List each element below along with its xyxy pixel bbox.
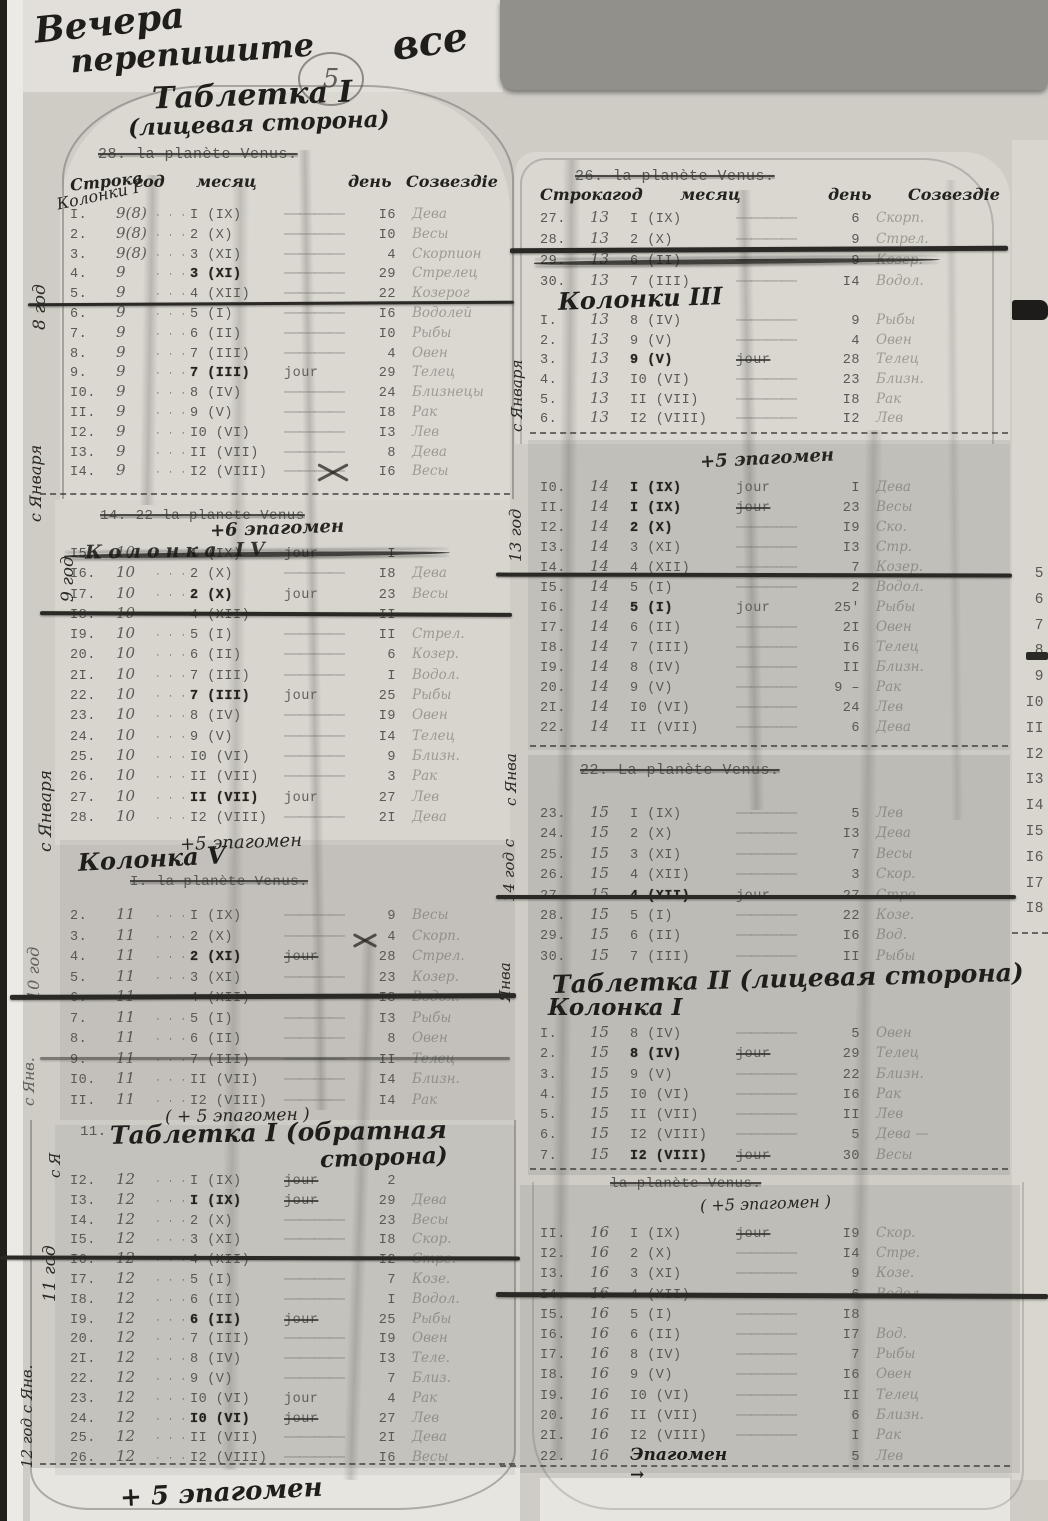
cell-year: 12 — [116, 1210, 156, 1228]
cell-constellation: Лев — [860, 805, 1000, 821]
cell-year: 13 — [590, 330, 630, 348]
line-number: I6 — [1018, 850, 1044, 876]
col-header-day: день — [828, 185, 872, 204]
cell-pencil-dots: · · · — [156, 751, 190, 763]
cell-year: 12 — [116, 1427, 156, 1445]
struck-print-header: 26. la planète Venus. — [575, 168, 775, 185]
cell-month: 6 (II) — [630, 254, 736, 269]
cell-day: 23 — [352, 588, 396, 603]
cell-month: I0 (VI) — [630, 701, 736, 716]
cell-year: 13 — [590, 408, 630, 426]
adjacent-page-line-numbers: 56789I0III2I3I4I5I6I7I8 — [1018, 566, 1044, 927]
table-row: 3.11· · ·2 (X)――――4Скорп. — [70, 926, 510, 947]
table-row: 4.9· · ·3 (XI)――――29Стрелец — [70, 263, 510, 283]
cell-day: 25 — [352, 689, 396, 704]
cell-pencil-dots: · · · — [156, 427, 190, 439]
cell-month: 9 (V) — [190, 730, 284, 745]
cell-year: 10 — [116, 685, 156, 703]
cell-year: 14 — [590, 577, 630, 595]
pencil-rule — [40, 1057, 510, 1060]
cell-constellation: Дева — — [860, 1126, 1000, 1142]
cell-row-number: 4. — [70, 950, 116, 965]
cell-jour: jour — [736, 1047, 816, 1062]
page-left-gap — [7, 0, 23, 1521]
cell-day: 22 — [816, 1068, 860, 1083]
cell-row-number: 25. — [70, 750, 116, 765]
cell-row-number: I. — [70, 208, 116, 223]
cell-constellation: Телец — [860, 639, 1000, 655]
cell-row-number: 6. — [540, 1128, 590, 1143]
cell-pencil-dots: · · · — [156, 629, 190, 641]
cell-year: 15 — [590, 946, 630, 964]
page-left-edge — [0, 0, 7, 1521]
cell-dash: ―――― — [284, 747, 352, 765]
cell-year: 14 — [590, 657, 630, 675]
table-row: 6.9· · ·5 (I)――――I6Водолей — [70, 303, 510, 323]
cell-row-number: 8. — [70, 1032, 116, 1047]
cell-constellation: Рыбы — [396, 687, 510, 703]
cell-pencil-dots: · · · — [156, 1353, 190, 1365]
cell-year: 15 — [590, 1145, 630, 1163]
cell-day: I4 — [352, 1094, 396, 1109]
line-number: II — [1018, 721, 1044, 747]
cell-month: 7 (III) — [190, 689, 284, 704]
cell-day: 7 — [352, 1273, 396, 1288]
table-row: 6.15I2 (VIII)――――5Дева — — [540, 1124, 1000, 1144]
cell-month: 9 (V) — [630, 1068, 736, 1083]
cell-pencil-dots: · · · — [156, 1333, 190, 1345]
cell-pencil-dots: · · · — [156, 771, 190, 783]
table-row: I8.169 (V)――――I6Овен — [540, 1364, 1000, 1384]
cell-day: 3 — [352, 770, 396, 785]
cell-row-number: 27. — [540, 212, 590, 227]
cell-year: 12 — [116, 1408, 156, 1426]
cell-row-number: I0. — [70, 386, 116, 401]
cell-constellation: Весы — [860, 846, 1000, 862]
cell-pencil-dots: · · · — [156, 209, 190, 221]
cell-row-number: 20. — [540, 1409, 590, 1424]
cell-dash: ―――― — [284, 666, 352, 684]
cell-row-number: 24. — [540, 827, 590, 842]
cell-year: 9 — [116, 422, 156, 440]
tablet2-column-subtitle: Колонка I — [548, 994, 682, 1021]
cell-year: 16 — [590, 1385, 630, 1403]
cell-row-number: 6. — [540, 412, 590, 427]
cell-month: 9 (V) — [190, 1372, 284, 1387]
cell-month: 7 (III) — [190, 669, 284, 684]
cell-month: 2 (X) — [190, 588, 284, 603]
cell-constellation: Дева — [860, 825, 1000, 841]
cell-constellation: Скорп. — [860, 210, 1000, 226]
cell-year: 11 — [116, 905, 156, 923]
cell-row-number: 5. — [540, 393, 590, 408]
table-row: I9.12· · ·6 (II)jour25Рыбы — [70, 1309, 510, 1329]
cell-year: 12 — [116, 1229, 156, 1247]
table-row: I4.12· · ·2 (X)――――23Весы — [70, 1210, 510, 1230]
pencil-x-mark — [316, 456, 350, 486]
cell-day: 27 — [352, 1412, 396, 1427]
cell-constellation: Весы — [396, 226, 510, 242]
cell-month: 6 (II) — [630, 929, 736, 944]
table-row: 3.9(8)· · ·3 (XI)――――4Скорпион — [70, 244, 510, 264]
table-row: 8.9· · ·7 (III)――――4Овен — [70, 343, 510, 363]
cell-year: 9 — [116, 442, 156, 460]
cell-dash: ―――― — [284, 264, 352, 282]
table-row: 7.15I2 (VIII)jour30Весы — [540, 1145, 1000, 1165]
cell-row-number: I2. — [540, 1247, 590, 1262]
line-number: I3 — [1018, 772, 1044, 798]
table-row: 20.10· · ·6 (II)――――6Козер. — [70, 644, 510, 664]
cell-jour: jour — [736, 1227, 816, 1242]
cell-year: 16 — [590, 1425, 630, 1443]
cell-row-number: II. — [70, 406, 116, 421]
cell-constellation: Водол. — [396, 1291, 510, 1307]
cell-row-number: 5. — [540, 1108, 590, 1123]
cell-dash: ―――― — [284, 403, 352, 421]
cell-day: 5 — [816, 1128, 860, 1143]
cell-row-number: I3. — [540, 1267, 590, 1282]
cell-month: II (VII) — [190, 1073, 284, 1088]
cell-row-number: 27. — [70, 791, 116, 806]
table-row: 4.15I0 (VI)――――I6Рак — [540, 1084, 1000, 1104]
cell-day: I8 — [816, 1308, 860, 1323]
cell-row-number: 2. — [70, 228, 116, 243]
cell-month: I (IX) — [190, 1174, 284, 1189]
cell-row-number: I7. — [70, 1273, 116, 1288]
cell-year: 9 — [116, 402, 156, 420]
cell-dash: ―――― — [284, 383, 352, 401]
cell-year: 13 — [590, 389, 630, 407]
cell-month: 6 (II) — [190, 648, 284, 663]
margin-note-start: с Января — [508, 360, 526, 432]
cell-dash: ―――― — [284, 564, 352, 582]
cell-day: 29 — [816, 1047, 860, 1062]
cell-year: 15 — [590, 1124, 630, 1142]
cell-year: 16 — [590, 1446, 630, 1464]
table-row: 5.15II (VII)――――IIЛев — [540, 1104, 1000, 1124]
cell-month: 5 (I) — [630, 581, 736, 596]
cell-row-number: I5. — [540, 581, 590, 596]
cell-month: 3 (XI) — [190, 1233, 284, 1248]
paper-patch — [540, 1478, 1010, 1521]
cell-constellation: Скор. — [396, 1231, 510, 1247]
cell-row-number: 30. — [540, 950, 590, 965]
cell-dash: ―――― — [736, 409, 816, 427]
cell-constellation: Водол. — [396, 667, 510, 683]
cell-month: I (IX) — [190, 909, 284, 924]
table-row: I.138 (IV)――――9Рыбы — [540, 310, 1000, 330]
cell-month: II (VII) — [190, 1431, 284, 1446]
cell-row-number: I8. — [70, 1293, 116, 1308]
cell-row-number: 29. — [540, 254, 590, 269]
cell-constellation: Близ. — [396, 1370, 510, 1386]
table-row: 23.10· · ·8 (IV)――――I9Овен — [70, 705, 510, 725]
cell-dash: ―――― — [736, 209, 816, 227]
margin-note-start: с Я — [46, 1153, 64, 1178]
cell-row-number: 2. — [70, 909, 116, 924]
cell-day: II — [816, 661, 860, 676]
cell-dash: ―――― — [284, 1009, 352, 1027]
cell-jour: jour — [284, 1392, 352, 1407]
table-row: I3.143 (XI)――――I3Стр. — [540, 537, 1000, 557]
cell-dash: ―――― — [736, 578, 816, 596]
cell-row-number: 25. — [70, 1431, 116, 1446]
cell-pencil-dots: · · · — [156, 1175, 190, 1187]
cell-day: 28 — [816, 353, 860, 368]
cell-year: 12 — [116, 1309, 156, 1327]
table-row: 28.155 (I)――――22Козе. — [540, 905, 1000, 925]
cell-constellation: Дева — [396, 565, 510, 581]
margin-note-start: с Янв. — [20, 1057, 38, 1106]
line-number: I0 — [1018, 695, 1044, 721]
cell-year: 13 — [590, 349, 630, 367]
cell-dash: ―――― — [284, 767, 352, 785]
cell-day: 9 — [816, 314, 860, 329]
cell-day: 28 — [352, 950, 396, 965]
cell-pencil-dots: · · · — [156, 308, 190, 320]
cell-row-number: 7. — [70, 1012, 116, 1027]
cell-pencil-dots: · · · — [156, 1013, 190, 1025]
venus-table-year16: II.16I (IX)jourI9Скор.I2.162 (X)――――I4Ст… — [540, 1223, 1000, 1465]
table-row: 9.9· · ·7 (III)jour29Телец — [70, 362, 510, 382]
torn-paper-overlay — [500, 0, 1048, 90]
cell-dash: ―――― — [284, 625, 352, 643]
table-row: 22.16Эпагомен →5Лев — [540, 1445, 1000, 1465]
cell-day: I4 — [352, 1073, 396, 1088]
cell-month: 6 (II) — [190, 1293, 284, 1308]
cell-pencil-dots: · · · — [156, 1294, 190, 1306]
cell-day: 22 — [352, 287, 396, 302]
table-row: 2.158 (IV)jour29Телец — [540, 1043, 1000, 1063]
pencil-x-mark — [352, 928, 378, 950]
cell-row-number: I5. — [540, 1308, 590, 1323]
cell-constellation: Скор. — [860, 866, 1000, 882]
cell-constellation: Близн. — [396, 748, 510, 764]
table-row: 29.136 (II)――――9Козер. — [540, 250, 1000, 271]
cell-row-number: 22. — [70, 689, 116, 704]
cell-constellation: Теле. — [396, 1350, 510, 1366]
cell-constellation: Козе. — [396, 1271, 510, 1287]
cell-dash: ―――― — [736, 272, 816, 290]
cell-day: I — [352, 547, 396, 562]
cell-pencil-dots: · · · — [156, 288, 190, 300]
cell-constellation: Стрел. — [396, 948, 510, 964]
cell-dash: ―――― — [284, 906, 352, 924]
table-row: I3.9· · ·II (VII)――――8Дева — [70, 442, 510, 462]
cell-row-number: I0. — [540, 481, 590, 496]
cell-day: 25' — [816, 601, 860, 616]
cell-dash: ―――― — [284, 927, 352, 945]
cell-month: 7 (III) — [630, 641, 736, 656]
cell-month: I0 (VI) — [190, 750, 284, 765]
venus-table-year15b: I.158 (IV)――――5Овен2.158 (IV)jour29Телец… — [540, 1023, 1000, 1165]
cell-pencil-dots: · · · — [156, 731, 190, 743]
cell-month: 3 (XI) — [630, 541, 736, 556]
cell-month: 3 (XI) — [630, 1267, 736, 1282]
table-row: 4.11· · ·2 (XI)jour28Стрел. — [70, 946, 510, 967]
cell-row-number: I4. — [70, 1214, 116, 1229]
cell-day: 6 — [352, 648, 396, 663]
ink-blot — [1012, 300, 1048, 320]
cell-dash: ―――― — [736, 1244, 816, 1262]
cell-constellation: Рак — [396, 1092, 510, 1108]
table-row: 26.154 (XII)――――3Скор. — [540, 864, 1000, 884]
margin-note-start: с Янва — [502, 753, 520, 806]
cell-constellation: Телец — [860, 1387, 1000, 1403]
cell-month: I2 (VIII) — [630, 412, 736, 427]
cell-dash: ―――― — [736, 638, 816, 656]
cell-jour: jour — [284, 1412, 352, 1427]
cell-year: 14 — [590, 477, 630, 495]
cell-year: 13 — [590, 310, 630, 328]
table-row: 2.11· · ·I (IX)――――9Весы — [70, 905, 510, 926]
cell-dash: ―――― — [284, 808, 352, 826]
cell-dash: ―――― — [284, 968, 352, 986]
struck-print-header: I. la planète Venus. — [130, 874, 308, 890]
cell-month: 4 (XII) — [630, 868, 736, 883]
cell-month: II (VII) — [630, 721, 736, 736]
cell-year: 15 — [590, 823, 630, 841]
struck-print-header: 28. la planète Venus. — [98, 146, 298, 163]
cell-constellation: Весы — [396, 586, 510, 602]
table-row: 27.13I (IX)――――6Скорп. — [540, 208, 1000, 229]
cell-constellation: Рыбы — [396, 1311, 510, 1327]
cell-jour: jour — [736, 353, 816, 368]
struck-print-header: 22. La planète Venus. — [580, 762, 780, 779]
table-row: 2I.10· · ·7 (III)――――IВодол. — [70, 665, 510, 685]
cell-day: I — [816, 1429, 860, 1444]
table-row: I2.162 (X)――――I4Стре. — [540, 1243, 1000, 1263]
table-row: 23.12· · ·I0 (VI)jour4Рак — [70, 1388, 510, 1408]
cell-year: 10 — [116, 563, 156, 581]
ink-blot — [1026, 652, 1048, 660]
cell-day: I9 — [352, 1332, 396, 1347]
cell-month: 2 (X) — [630, 233, 736, 248]
cell-constellation: Ско. — [860, 519, 1000, 535]
cell-dash: ―――― — [736, 1125, 816, 1143]
cell-row-number: I3. — [70, 1194, 116, 1209]
table-row: I5.165 (I)――――I8 — [540, 1304, 1000, 1324]
cell-dash: ―――― — [284, 1029, 352, 1047]
cell-year: 15 — [590, 1104, 630, 1122]
pencil-rule — [496, 895, 1016, 899]
cell-year: 9 — [116, 382, 156, 400]
cell-year: 9(8) — [116, 224, 156, 242]
cell-day: 29 — [352, 366, 396, 381]
cell-constellation: Весы — [860, 1147, 1000, 1163]
cell-month: 7 (III) — [190, 366, 284, 381]
table-row: 25.153 (XI)――――7Весы — [540, 844, 1000, 864]
cell-dash: ―――― — [284, 1290, 352, 1308]
cell-day: I6 — [352, 465, 396, 480]
cell-row-number: II. — [540, 1227, 590, 1242]
cell-constellation: Овен — [396, 345, 510, 361]
cell-constellation: Лев — [860, 1448, 1000, 1464]
cell-month: 2 (X) — [630, 1247, 736, 1262]
cell-day: I0 — [352, 327, 396, 342]
cell-month: 2 (X) — [630, 521, 736, 536]
cell-day: 5 — [816, 1027, 860, 1042]
cell-dash: ―――― — [284, 344, 352, 362]
cell-month: 5 (I) — [630, 1308, 736, 1323]
dashed-divider — [530, 1168, 1008, 1170]
cell-day: 8 — [352, 1032, 396, 1047]
cell-constellation: Овен — [396, 707, 510, 723]
cell-year: 15 — [590, 864, 630, 882]
cell-row-number: 28. — [70, 811, 116, 826]
cell-row-number: 23. — [70, 1392, 116, 1407]
cell-day: I6 — [352, 307, 396, 322]
cell-month: I (IX) — [630, 807, 736, 822]
cell-year: 13 — [590, 208, 630, 226]
cell-day: 5 — [816, 1450, 860, 1465]
cell-row-number: 2. — [540, 1047, 590, 1062]
cell-month: I (IX) — [630, 212, 736, 227]
cell-row-number: 4. — [540, 373, 590, 388]
table-row: 2I.14I0 (VI)――――24Лев — [540, 697, 1000, 717]
cell-month: 8 (IV) — [630, 1027, 736, 1042]
table-row: 24.12· · ·I0 (VI)jour27Лев — [70, 1408, 510, 1428]
cell-month: 5 (I) — [190, 307, 284, 322]
cell-dash: ―――― — [284, 225, 352, 243]
table-row: I0.14I (IX)jourIДева — [540, 477, 1000, 497]
cell-pencil-dots: · · · — [156, 1195, 190, 1207]
cell-jour: jour — [284, 689, 352, 704]
cell-row-number: 28. — [540, 233, 590, 248]
table-row: 3.159 (V)――――22Близн. — [540, 1064, 1000, 1084]
cell-month: 3 (XI) — [630, 848, 736, 863]
cell-month: 7 (III) — [190, 1053, 284, 1068]
cell-year: 15 — [590, 1023, 630, 1041]
cell-day: 4 — [352, 1392, 396, 1407]
dashed-divider — [40, 493, 510, 495]
cell-year: 9 — [116, 283, 156, 301]
cell-year: 11 — [116, 1090, 156, 1108]
cell-constellation: Стрел. — [860, 231, 1000, 247]
cell-constellation: Близн. — [396, 1071, 510, 1087]
cell-row-number: I8. — [540, 641, 590, 656]
cell-constellation: Стрелец — [396, 265, 510, 281]
cell-constellation: Водол. — [860, 579, 1000, 595]
cell-row-number: 20. — [540, 681, 590, 696]
cell-constellation: Близнецы — [396, 384, 510, 400]
cell-pencil-dots: · · · — [156, 710, 190, 722]
cell-day: 7 — [816, 848, 860, 863]
cell-pencil-dots: · · · — [156, 1274, 190, 1286]
cell-dash: ―――― — [284, 1369, 352, 1387]
dashed-divider — [40, 1463, 515, 1465]
cell-row-number: I. — [540, 1027, 590, 1042]
cell-month: 3 (XI) — [190, 267, 284, 282]
table-row: 27.10· · ·II (VII)jour27Лев — [70, 787, 510, 807]
cell-day: I8 — [352, 567, 396, 582]
cell-day: 7 — [816, 1348, 860, 1363]
cell-year: 10 — [116, 584, 156, 602]
cell-constellation: Овен — [860, 1025, 1000, 1041]
cell-constellation: Козер. — [860, 252, 1000, 268]
cell-year: 9 — [116, 343, 156, 361]
cell-year: 9 — [116, 461, 156, 479]
cell-constellation: Стр. — [860, 539, 1000, 555]
cell-day: I6 — [816, 1088, 860, 1103]
cell-pencil-dots: · · · — [156, 1393, 190, 1405]
cell-constellation: Рак — [860, 1086, 1000, 1102]
table-row: 24.10· · ·9 (V)――――I4Телец — [70, 726, 510, 746]
cell-year: 16 — [590, 1243, 630, 1261]
col-header-row: Строка — [540, 185, 613, 204]
cell-day: I3 — [816, 541, 860, 556]
cell-year: 14 — [590, 617, 630, 635]
